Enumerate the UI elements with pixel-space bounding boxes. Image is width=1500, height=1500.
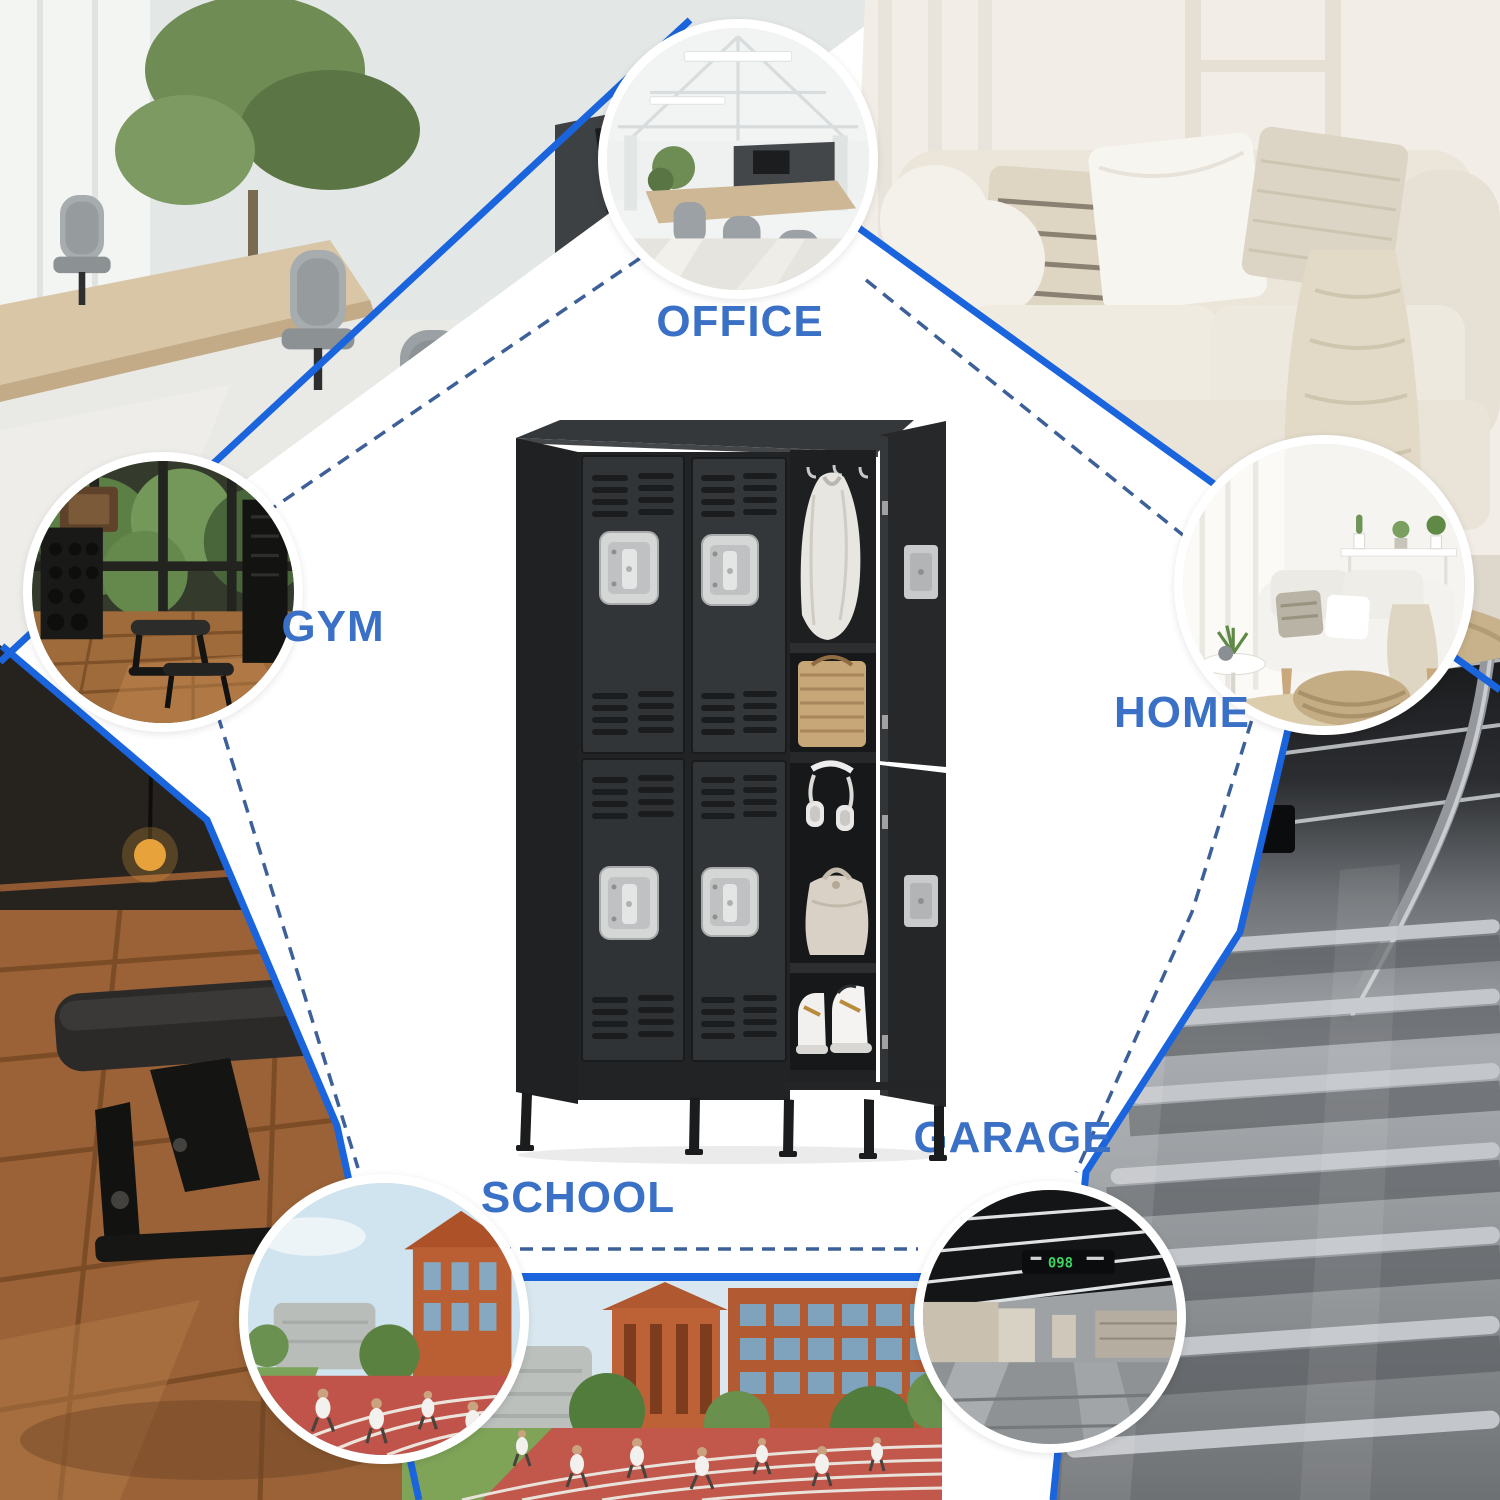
locker-product [498, 415, 948, 1165]
bag [806, 870, 869, 955]
locker-side [516, 438, 578, 1104]
garage-inset-sign: 098 [1022, 1250, 1115, 1274]
garage-sign-arrow: → [1215, 817, 1239, 844]
office-inset-art [607, 28, 869, 290]
gym-inset-art [32, 461, 294, 723]
home-inset-art [1183, 444, 1465, 726]
garage-inset-art: 098 [923, 1190, 1177, 1444]
garage-sign-number: 098 [1128, 813, 1182, 848]
gym-inset [23, 452, 303, 732]
school-label: SCHOOL [481, 1173, 675, 1223]
gym-label: GYM [281, 602, 384, 652]
poster-canvas: 098 → [0, 0, 1500, 1500]
office-inset [598, 19, 878, 299]
locker-art [498, 415, 948, 1165]
locker-open-compartment [790, 450, 876, 1082]
garage-inset-sign-number: 098 [1048, 1255, 1073, 1271]
school-inset-art [248, 1183, 520, 1455]
office-label: OFFICE [656, 297, 823, 347]
garage-inset: 098 [914, 1181, 1186, 1453]
basket [798, 657, 866, 747]
home-label: HOME [1114, 688, 1250, 738]
locker-open-doors [880, 421, 946, 1107]
garage-sign: 098 → [1095, 805, 1295, 853]
